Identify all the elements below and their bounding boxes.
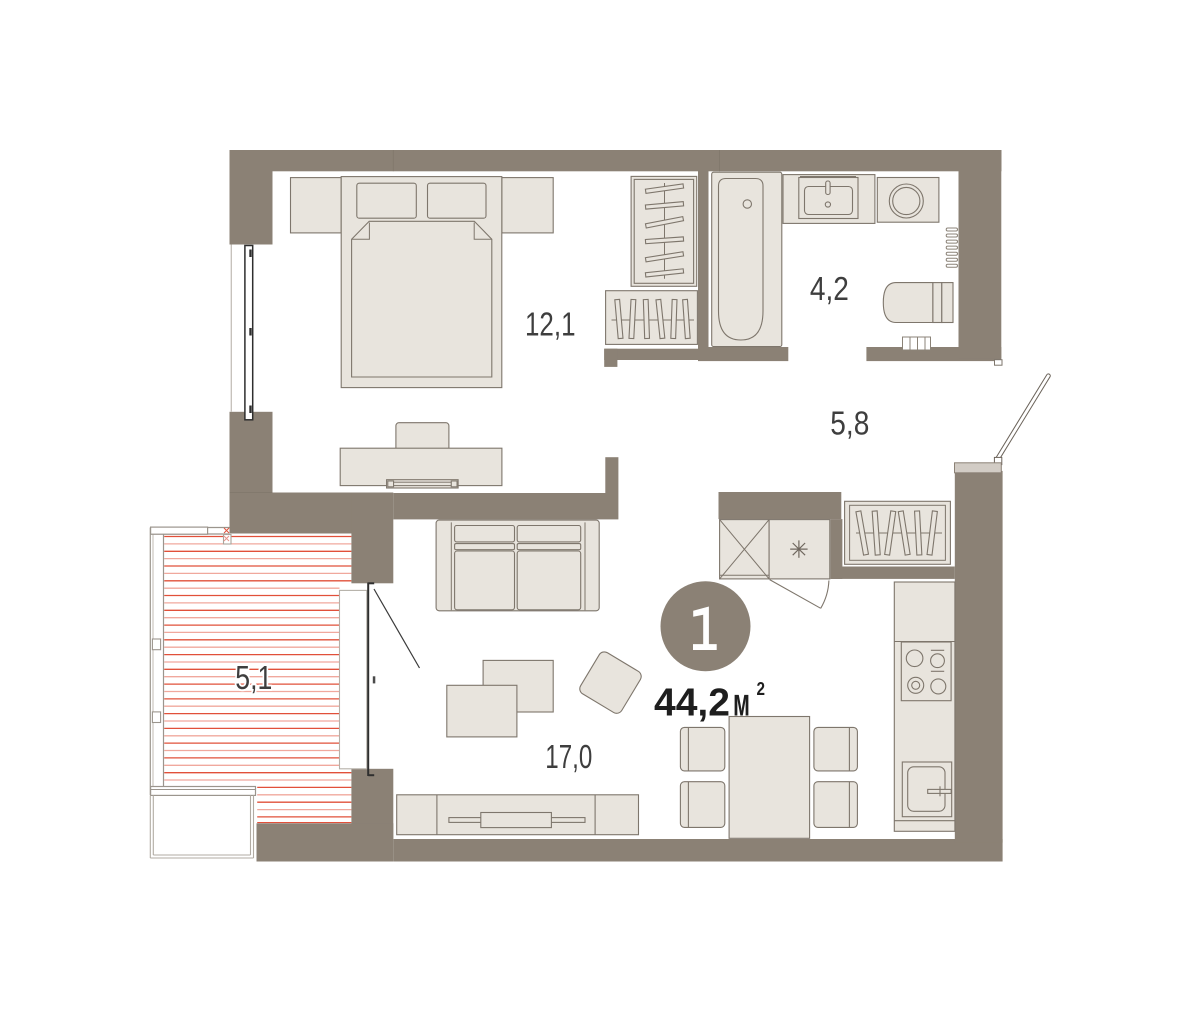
svg-text:5,1: 5,1 — [235, 659, 272, 696]
svg-text:4,2: 4,2 — [810, 270, 849, 307]
svg-text:5,8: 5,8 — [830, 404, 869, 441]
svg-text:12,1: 12,1 — [525, 306, 576, 343]
svg-text:44,2: 44,2 — [654, 681, 730, 724]
svg-text:2: 2 — [757, 678, 766, 699]
svg-text:м: м — [733, 681, 750, 724]
svg-text:17,0: 17,0 — [545, 738, 592, 775]
